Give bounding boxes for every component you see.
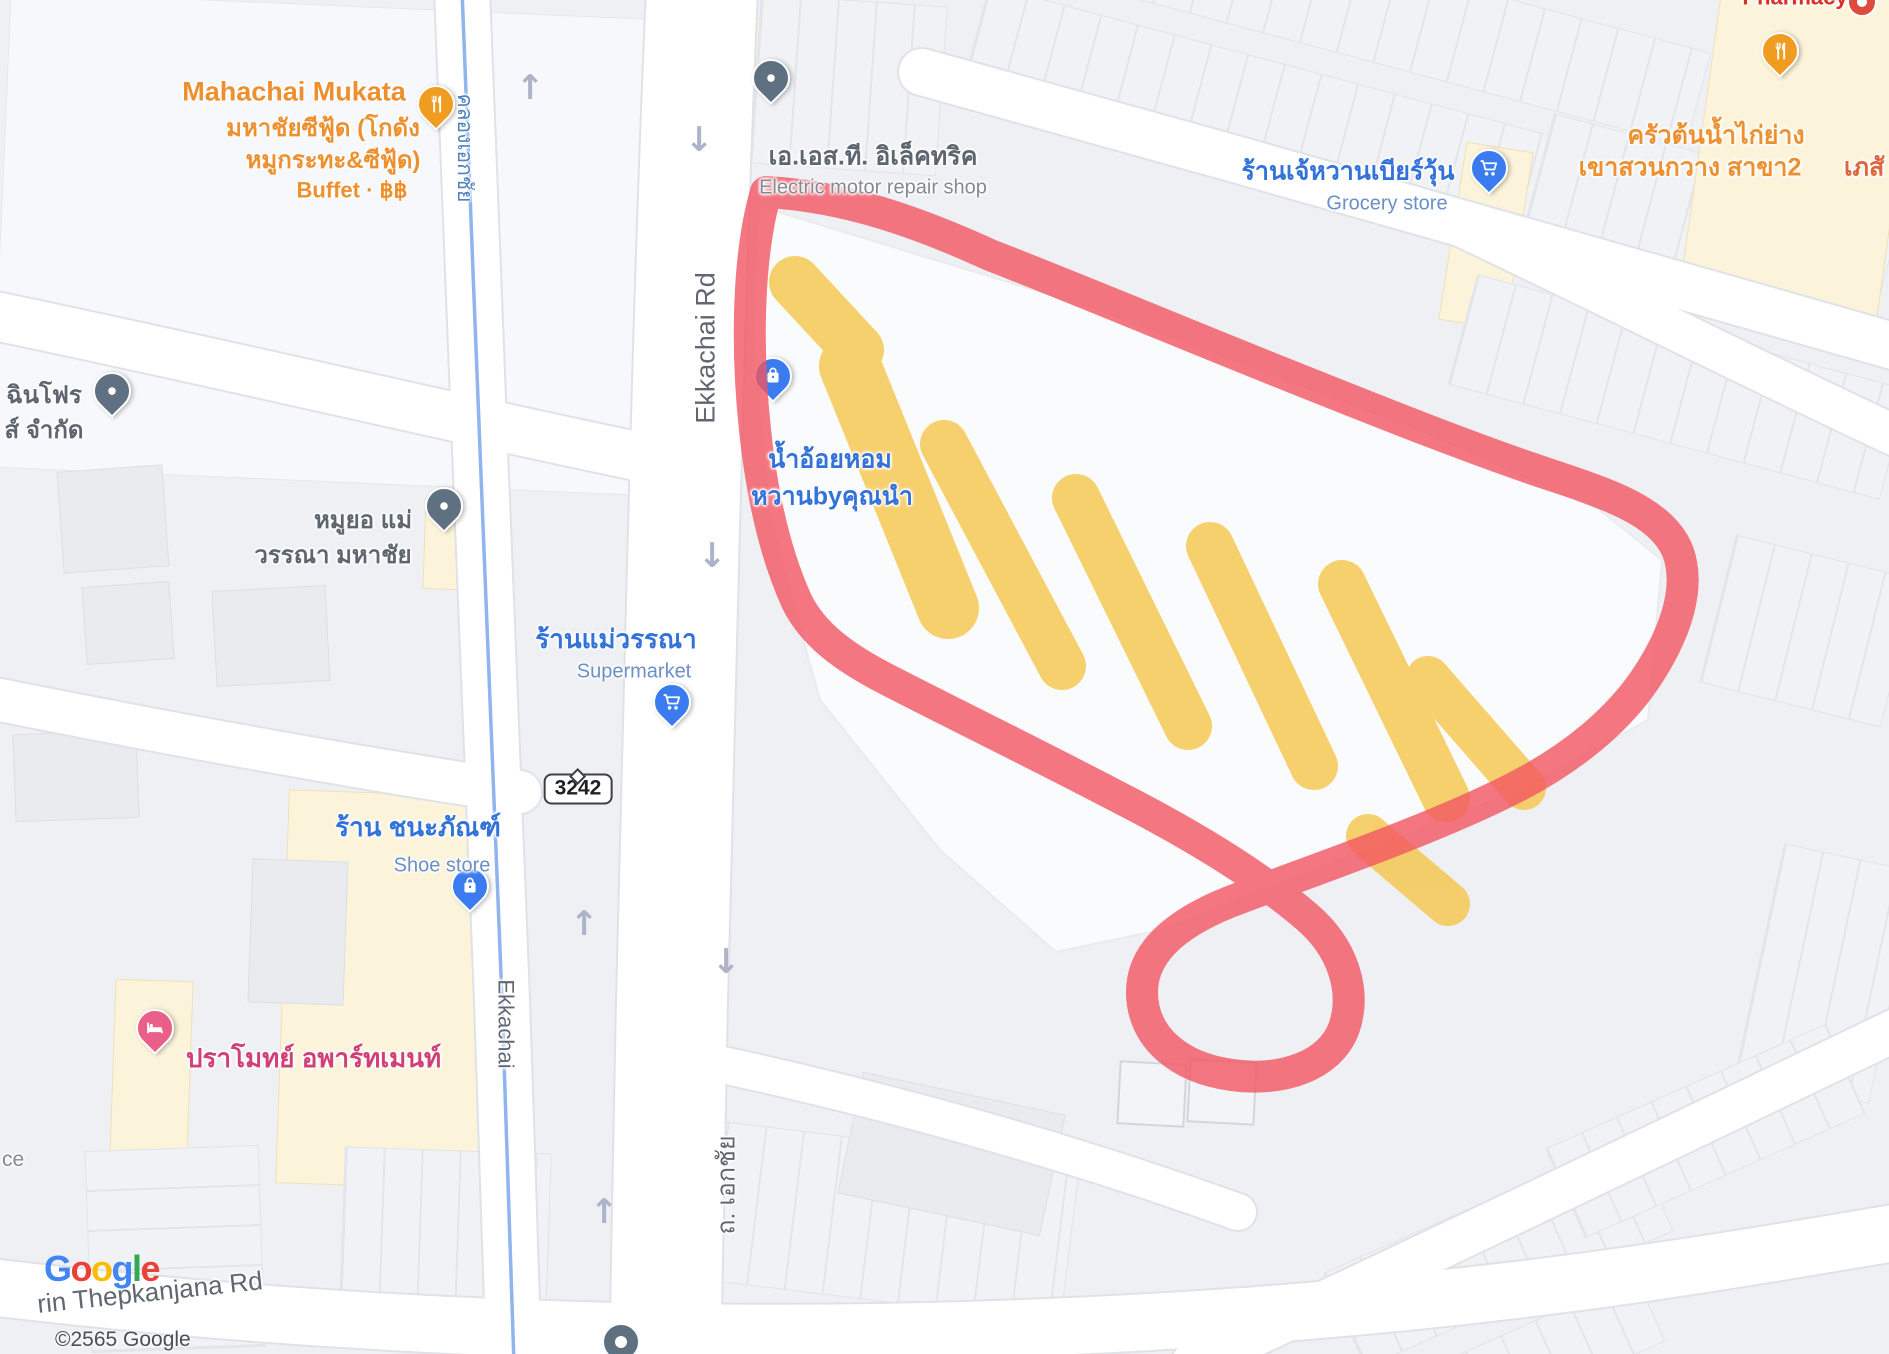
google-logo-letter: g — [112, 1248, 133, 1289]
copyright-text: ©2565 Google — [55, 1328, 191, 1352]
google-logo-letter: e — [141, 1248, 160, 1289]
google-logo-letter: o — [71, 1248, 92, 1289]
google-logo-letter: G — [44, 1248, 71, 1289]
google-logo-letter: o — [91, 1248, 112, 1289]
google-logo[interactable]: Google — [44, 1248, 159, 1290]
map-canvas[interactable]: 3242 ↓↓↓↑↑↑ Mahachai Mukataมหาชัยซีฟู้ด … — [0, 0, 1889, 1354]
attribution-layer: Google ©2565 Google — [0, 0, 1889, 1354]
google-logo-letter: l — [132, 1248, 141, 1289]
